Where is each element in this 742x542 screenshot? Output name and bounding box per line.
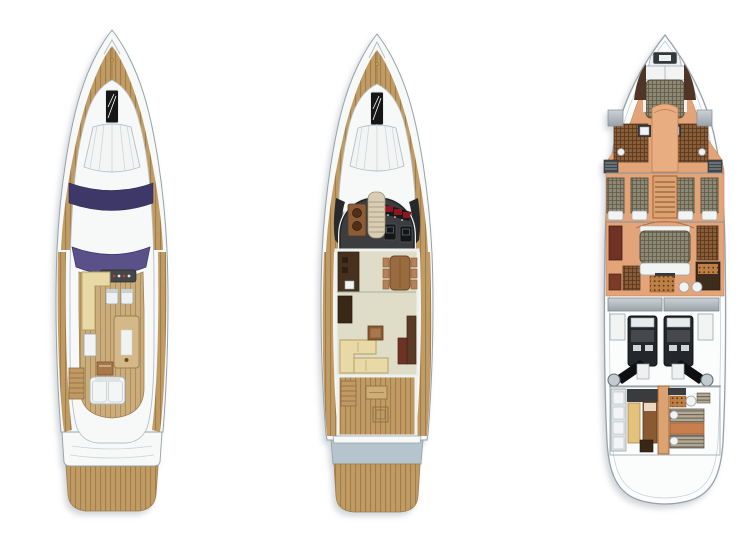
crew-divider bbox=[658, 386, 669, 454]
crew-cabinet-small bbox=[640, 440, 653, 452]
companionway-stairs bbox=[368, 192, 385, 238]
swim-platform bbox=[334, 464, 420, 512]
platform-band bbox=[331, 440, 423, 464]
master-rug bbox=[650, 276, 674, 292]
deck-plans-canvas bbox=[0, 0, 742, 542]
head-light-port bbox=[618, 149, 625, 156]
crew-wardrobe bbox=[611, 389, 626, 451]
crew-sink bbox=[686, 396, 696, 406]
dining-area bbox=[383, 256, 417, 290]
head-light-starboard bbox=[699, 149, 706, 156]
crew-appliance bbox=[668, 388, 686, 395]
hull-hatch-port bbox=[608, 110, 623, 126]
yacht-deck-plans-figure bbox=[0, 0, 742, 542]
master-wardrobe-starboard bbox=[697, 226, 718, 260]
transom-edge bbox=[333, 436, 421, 443]
cockpit-table bbox=[366, 386, 387, 399]
foredeck-sunpad bbox=[84, 123, 140, 173]
fridge-unit bbox=[84, 334, 96, 356]
crew-bunk-tan bbox=[628, 403, 640, 443]
side-vent-port bbox=[604, 160, 618, 173]
central-staircase bbox=[653, 176, 677, 218]
crew-locker-striped bbox=[697, 393, 710, 403]
sun-lounger bbox=[90, 377, 125, 404]
deck-hatch bbox=[371, 92, 384, 125]
salon-cabinet-starboard bbox=[407, 316, 416, 364]
deck-hatch bbox=[106, 90, 119, 123]
main-deck-plan bbox=[321, 34, 433, 512]
coffee-table bbox=[368, 326, 383, 340]
master-vanity-port bbox=[623, 266, 640, 290]
hull-hatch-starboard bbox=[697, 110, 712, 126]
flybridge-stairs bbox=[69, 368, 84, 399]
cockpit-stairs bbox=[341, 381, 356, 406]
side-vent-starboard bbox=[708, 160, 722, 173]
flybridge-deck-plan bbox=[56, 30, 168, 511]
swim-platform bbox=[66, 466, 158, 511]
lower-deck-plan bbox=[604, 35, 726, 504]
crew-beds-starboard bbox=[670, 409, 704, 448]
foredeck-sunpad bbox=[350, 124, 404, 172]
salon-cabinet-aft bbox=[398, 338, 407, 364]
master-cabinet-port bbox=[609, 274, 621, 290]
master-wardrobe-port bbox=[609, 226, 622, 260]
galley-cabinet bbox=[348, 204, 366, 236]
vip-corridor bbox=[652, 104, 678, 172]
crew-mat bbox=[670, 396, 686, 407]
crew-bunk-brown bbox=[643, 402, 657, 443]
flybridge-table bbox=[114, 316, 139, 368]
master-bed bbox=[636, 222, 694, 279]
side-table bbox=[97, 362, 113, 375]
